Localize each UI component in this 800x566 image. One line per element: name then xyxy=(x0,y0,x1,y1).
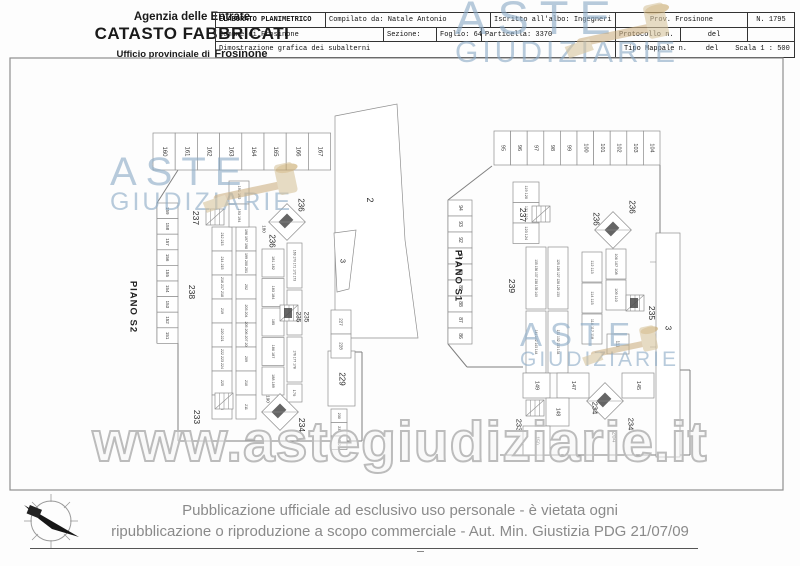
stall-number: 191 192 xyxy=(237,186,241,200)
s1-area-3-strip xyxy=(656,233,680,457)
s2-area-3: 3 xyxy=(339,259,348,263)
stall-number: 103 xyxy=(632,143,638,152)
s1-label-239: 239 xyxy=(507,279,517,293)
stall-number: 160 xyxy=(161,146,167,157)
s1-label-236b: 236 xyxy=(592,212,601,226)
stall-number: 93 xyxy=(457,221,463,227)
stall-number: 231 xyxy=(337,426,341,432)
s1-stall-150: 150 xyxy=(534,436,540,445)
stall-number: 203 204 xyxy=(244,305,248,318)
s2-label-235b: 235 xyxy=(303,312,310,323)
stall-number: 227 xyxy=(339,318,344,326)
s2-area-2-outline xyxy=(335,104,418,338)
s2-label-233: 233 xyxy=(192,410,202,424)
stall-number: 97 xyxy=(533,145,539,151)
footer-dash xyxy=(417,551,424,552)
stall-number: 151 xyxy=(165,332,170,340)
stall-number: 152 xyxy=(165,316,170,324)
s2-inner-col2: 196 197 198199 200 201202203 204205 206 … xyxy=(236,227,256,419)
stall-number: 101 xyxy=(599,143,605,152)
s1-cluster-106: 106 107 108109 110 xyxy=(606,249,626,310)
s2-mid-col: 181 182183 184185186 187188 189 xyxy=(262,249,284,395)
compass-rose xyxy=(15,490,95,562)
stall-number: 86 xyxy=(457,333,463,339)
stall-number: 99 xyxy=(566,145,572,151)
stall-number: 164 xyxy=(250,146,256,157)
stall-number: 232 xyxy=(337,440,341,446)
stall-number: 87 xyxy=(457,317,463,323)
stall-number: 166 xyxy=(294,146,300,157)
s2-top-row: 160161162163164165166167 xyxy=(153,133,331,170)
s1-label-237: 237 xyxy=(518,208,528,222)
s1-lift-shaft xyxy=(630,298,638,308)
s2-inner-col1: 212 213214 215216 217 218219220 221222 2… xyxy=(212,227,232,419)
plan-piano-s1: 9596979899100101102103104 94939291908988… xyxy=(448,131,690,457)
s2-stairs-icon-2 xyxy=(215,393,233,409)
stall-number: 141 142 143 144 xyxy=(534,330,538,355)
stall-number: 135 136 137 138 139 140 xyxy=(534,259,538,297)
footer-disclaimer: Pubblicazione ufficiale ad esclusivo uso… xyxy=(0,500,800,542)
s1-label-235: 235 xyxy=(647,306,657,320)
plan-piano-s2: 160161162163164165166167 159158157156155… xyxy=(128,104,419,450)
footer-line-2: ripubblicazione o riproduzione a scopo c… xyxy=(0,521,800,542)
stall-number: 154 xyxy=(165,285,170,293)
stall-number: 94 xyxy=(457,205,463,211)
s1-label-234b: 234 xyxy=(627,418,636,431)
stall-number: 222 223 224 xyxy=(220,349,224,369)
s2-col-227: 227228 xyxy=(331,310,351,358)
s1-stairs-icon-3 xyxy=(526,400,544,416)
s1-stairs-icon-1 xyxy=(532,206,550,222)
s2-label-180: 180 xyxy=(262,225,267,233)
s1-stall-145: 145 xyxy=(635,381,641,390)
stall-number: 159 xyxy=(165,207,170,215)
stall-number: 161 xyxy=(183,146,189,157)
stall-number: 211 xyxy=(244,404,248,410)
stall-number: 155 xyxy=(165,269,170,277)
stall-number: 98 xyxy=(549,145,555,151)
stall-number: 196 197 198 xyxy=(244,229,248,249)
stall-number: 202 xyxy=(244,284,248,290)
stall-number: 156 xyxy=(165,254,170,262)
s2-label-237: 237 xyxy=(191,211,201,225)
stall-number: 225 xyxy=(220,380,224,386)
s1-label-236a: 236 xyxy=(628,200,637,214)
s1-stall-147: 147 xyxy=(570,381,576,390)
stall-number: 158 xyxy=(165,223,170,231)
stall-number: 214 215 xyxy=(220,257,224,270)
stall-number: 176 177 178 xyxy=(293,350,297,369)
stall-number: 181 182 xyxy=(271,256,275,270)
stall-number: 104 xyxy=(649,143,655,152)
stall-number: 188 189 xyxy=(271,374,275,388)
stall-number: 165 xyxy=(272,146,278,157)
s2-stall-179: 179 xyxy=(292,390,297,397)
s1-top-row: 9596979899100101102103104 xyxy=(494,131,660,165)
s1-tall-col1: 135 136 137 138 139 140141 142 143 144 xyxy=(526,247,546,373)
stall-number: 153 xyxy=(165,301,170,309)
s1-stall-149: 149 xyxy=(534,381,540,390)
s1-cluster-112: 112 113114 115116 117 118 xyxy=(582,252,602,344)
s2-label-238: 238 xyxy=(187,285,197,299)
planimetric-drawing: 160161162163164165166167 159158157156155… xyxy=(0,0,800,566)
stall-number: 169 170 171 172 173 xyxy=(293,250,297,281)
s1-stall-148: 148 xyxy=(555,408,561,417)
stall-number: 109 110 xyxy=(614,288,618,301)
stall-number: 162 xyxy=(206,146,212,157)
s2-lift-shaft xyxy=(284,308,292,318)
stall-number: 123 124 xyxy=(524,226,528,240)
s1-stall-111: 111 xyxy=(616,341,621,348)
stall-number: 212 213 xyxy=(220,233,224,246)
stall-number: 230 xyxy=(337,413,341,419)
footer-line-1: Pubblicazione ufficiale ad esclusivo uso… xyxy=(0,500,800,521)
stall-number: 92 xyxy=(457,237,463,243)
s2-plan-name: PIANO S2 xyxy=(128,281,139,333)
stall-number: 209 xyxy=(244,356,248,362)
s2-label-190: 190 xyxy=(266,395,271,403)
stall-number: 114 115 xyxy=(590,291,594,304)
stall-number: 186 187 xyxy=(271,345,275,359)
footer-divider xyxy=(30,548,698,549)
stall-number: 228 xyxy=(339,342,344,350)
stall-number: 157 xyxy=(165,238,170,246)
stall-number: 205 206 207 208 xyxy=(244,322,248,349)
stall-number: 131 132 133 134 xyxy=(556,330,560,355)
s1-tall-col2: 125 126 127 128 129 130131 132 133 134 xyxy=(548,247,568,373)
stall-number: 100 xyxy=(582,143,588,152)
s2-pairs-top: 191 192193 194 xyxy=(229,181,249,227)
stall-number: 185 xyxy=(271,319,275,325)
stall-number: 102 xyxy=(616,143,622,152)
s2-label-235a: 235 xyxy=(295,312,302,323)
s2-label-236b: 236 xyxy=(268,234,277,248)
stall-number: 112 113 xyxy=(590,260,594,273)
stall-number: 95 xyxy=(499,145,505,151)
stall-number: 119 120 xyxy=(524,186,528,199)
stall-number: 183 184 xyxy=(271,286,275,300)
stall-number: 106 107 108 xyxy=(614,253,618,274)
s2-stairs-icon-1 xyxy=(206,209,224,225)
stall-number: 199 200 201 xyxy=(244,253,248,273)
s2-label-234: 234 xyxy=(297,418,307,432)
stall-number: 125 126 127 128 129 130 xyxy=(556,259,560,297)
s1-label-264: 264 xyxy=(611,432,618,443)
stall-number: 210 xyxy=(244,380,248,386)
stall-number: 216 217 218 xyxy=(220,277,224,297)
s2-label-236a: 236 xyxy=(297,198,306,212)
stall-number: 116 117 118 xyxy=(590,319,594,339)
s2-label-229: 229 xyxy=(338,372,347,386)
stall-number: 163 xyxy=(228,146,234,157)
stall-number: 193 194 xyxy=(237,209,241,223)
stall-number: 96 xyxy=(516,145,522,151)
s1-label-234a: 234 xyxy=(591,402,600,415)
s2-area-2: 2 xyxy=(365,197,375,202)
s1-label-233: 233 xyxy=(515,419,524,432)
s2-col-230: 230231232 xyxy=(331,409,347,450)
s1-plan-name: PIANO S1 xyxy=(453,250,464,302)
stall-number: 219 xyxy=(220,308,224,314)
s2-left-col: 159158157156155154153152151 xyxy=(157,203,178,343)
stall-number: 167 xyxy=(317,146,323,157)
s1-area-3: 3 xyxy=(664,326,673,331)
stall-number: 220 221 xyxy=(220,329,224,342)
